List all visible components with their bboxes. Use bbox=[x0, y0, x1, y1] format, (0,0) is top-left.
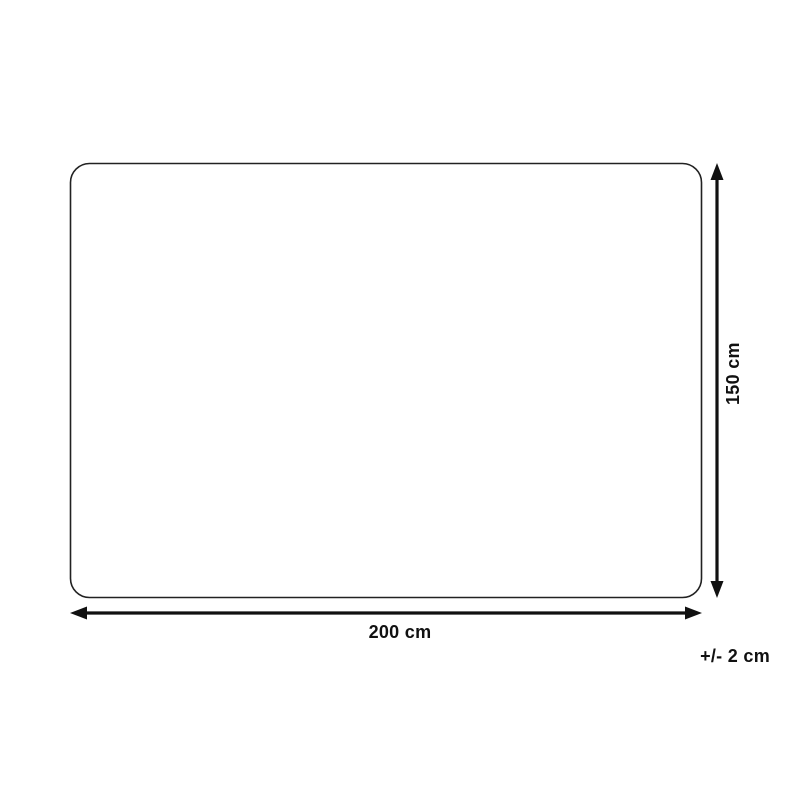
dimension-diagram: 200 cm 150 cm +/- 2 cm bbox=[0, 0, 800, 800]
width-arrow-head-right-icon bbox=[685, 607, 702, 620]
width-arrow-head-left-icon bbox=[70, 607, 87, 620]
width-dimension-label: 200 cm bbox=[320, 623, 480, 641]
dimension-diagram-graphics bbox=[0, 0, 800, 800]
tolerance-label: +/- 2 cm bbox=[640, 647, 770, 665]
width-dimension-arrow bbox=[70, 607, 702, 620]
height-dimension-arrow bbox=[711, 163, 724, 598]
height-arrow-head-down-icon bbox=[711, 581, 724, 598]
height-arrow-head-up-icon bbox=[711, 163, 724, 180]
product-outline-rect bbox=[71, 164, 702, 598]
height-dimension-label: 150 cm bbox=[724, 345, 742, 405]
